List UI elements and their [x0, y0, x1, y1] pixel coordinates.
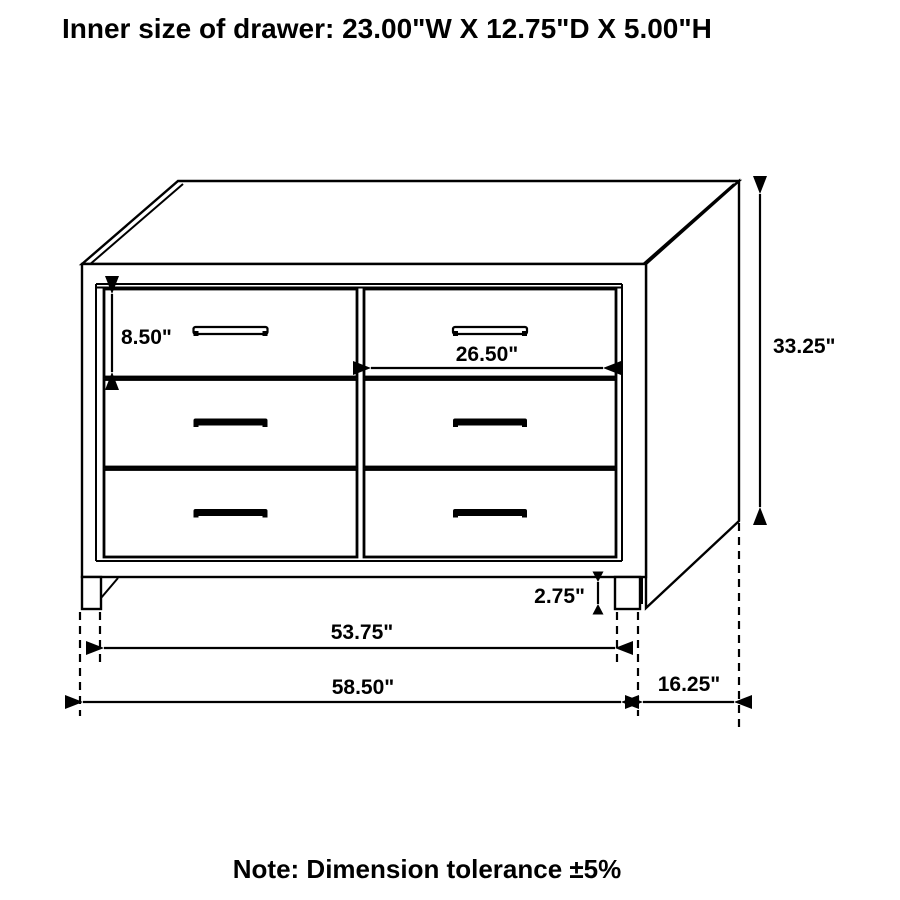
- dimension-base-height: 2.75": [534, 582, 598, 608]
- dimension-overall-width: 58.50": [83, 676, 621, 702]
- dimension-label: 33.25": [773, 335, 836, 358]
- dimension-label: 58.50": [332, 676, 395, 699]
- dimension-overall-height: 33.25": [760, 194, 836, 507]
- dimension-label: 8.50": [121, 326, 172, 349]
- drawer-handle: [453, 327, 527, 336]
- tolerance-note: Note: Dimension tolerance ±5%: [233, 854, 621, 885]
- dimension-label: 53.75": [331, 621, 394, 644]
- left-leg-bracket: [101, 578, 118, 598]
- dimension-label: 2.75": [534, 585, 585, 608]
- dimension-inner-width: 53.75": [104, 621, 615, 648]
- drawer-handle: [194, 327, 268, 336]
- dimension-overall-depth: 16.25": [643, 673, 734, 702]
- dresser-diagram: 8.50" 26.50" 33.25" 2.75" 53.75" 58.50": [0, 0, 900, 900]
- dimension-label: 16.25": [658, 673, 721, 696]
- right-leg: [615, 577, 640, 609]
- dimension-diagram-page: Inner size of drawer: 23.00"W X 12.75"D …: [0, 0, 900, 900]
- dresser-top-face: [82, 181, 739, 269]
- dimension-label: 26.50": [456, 343, 519, 366]
- left-leg: [82, 577, 101, 609]
